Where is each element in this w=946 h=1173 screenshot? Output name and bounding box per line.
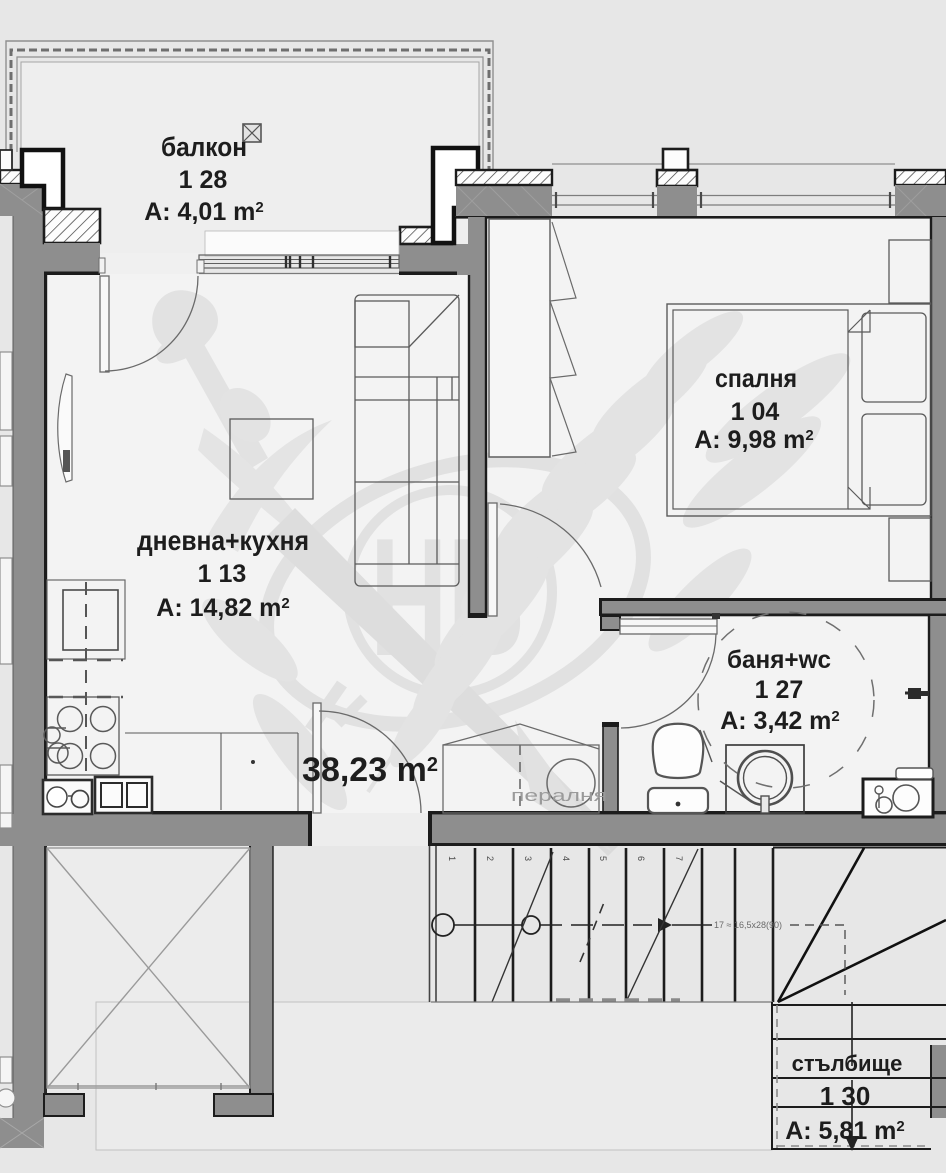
- svg-text:1 28: 1 28: [179, 166, 228, 194]
- svg-text:A: 4,01 m2: A: 4,01 m2: [144, 198, 264, 226]
- svg-text:4: 4: [561, 856, 571, 861]
- svg-text:A: 9,98 m2: A: 9,98 m2: [694, 426, 814, 454]
- svg-text:38,23 m2: 38,23 m2: [302, 751, 438, 789]
- svg-text:пералня: пералня: [511, 786, 607, 805]
- svg-text:A: 5,81 m2: A: 5,81 m2: [785, 1117, 905, 1145]
- svg-text:1 04: 1 04: [731, 398, 780, 426]
- svg-text:балкон: балкон: [161, 132, 247, 162]
- svg-text:1 30: 1 30: [820, 1081, 871, 1111]
- svg-text:17 ≈ 16,5x28(90): 17 ≈ 16,5x28(90): [714, 920, 782, 930]
- svg-text:баня+wc: баня+wc: [727, 646, 831, 674]
- svg-text:1 13: 1 13: [198, 560, 247, 588]
- svg-text:A: 14,82 m2: A: 14,82 m2: [156, 594, 289, 622]
- svg-text:1: 1: [447, 856, 457, 861]
- svg-text:3: 3: [523, 856, 533, 861]
- svg-text:стълбище: стълбище: [792, 1051, 903, 1076]
- svg-text:6: 6: [636, 856, 646, 861]
- svg-text:2: 2: [485, 856, 495, 861]
- svg-text:7: 7: [674, 856, 684, 861]
- svg-text:1 27: 1 27: [755, 676, 804, 704]
- svg-text:5: 5: [598, 856, 608, 861]
- svg-text:A: 3,42 m2: A: 3,42 m2: [720, 707, 840, 735]
- svg-text:спалня: спалня: [715, 363, 797, 393]
- svg-text:дневна+кухня: дневна+кухня: [137, 525, 309, 556]
